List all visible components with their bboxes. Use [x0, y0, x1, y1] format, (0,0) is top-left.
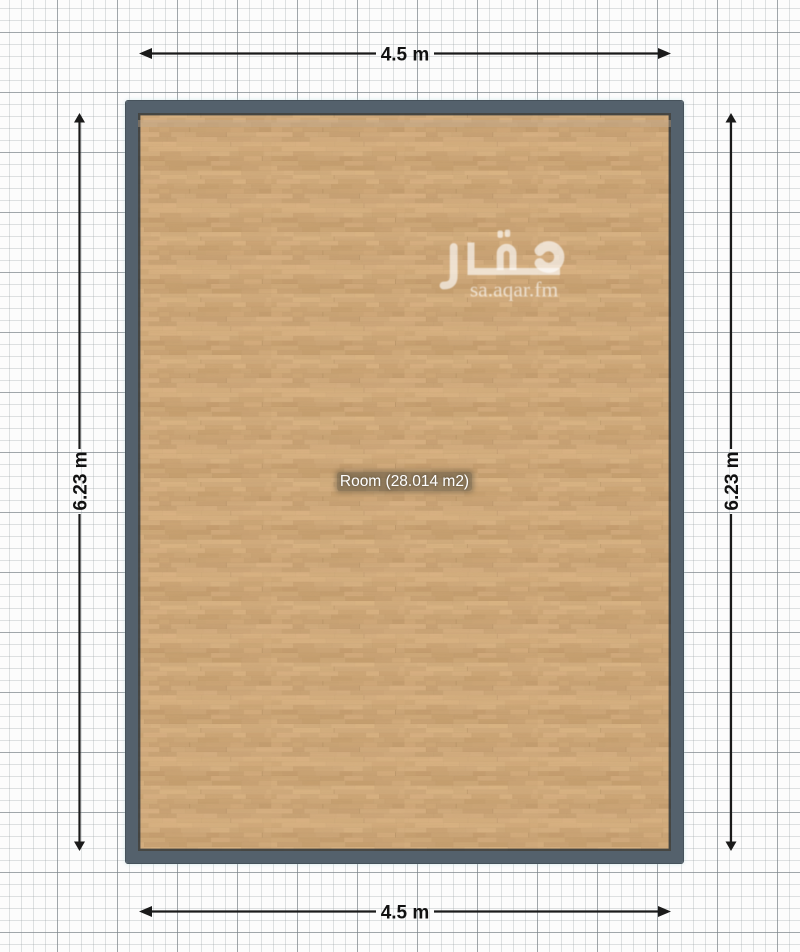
svg-text:6.23 m: 6.23 m — [722, 451, 743, 510]
svg-text:4.5 m: 4.5 m — [381, 903, 430, 924]
svg-text:6.23 m: 6.23 m — [71, 451, 92, 510]
svg-text:4.5 m: 4.5 m — [381, 45, 430, 66]
